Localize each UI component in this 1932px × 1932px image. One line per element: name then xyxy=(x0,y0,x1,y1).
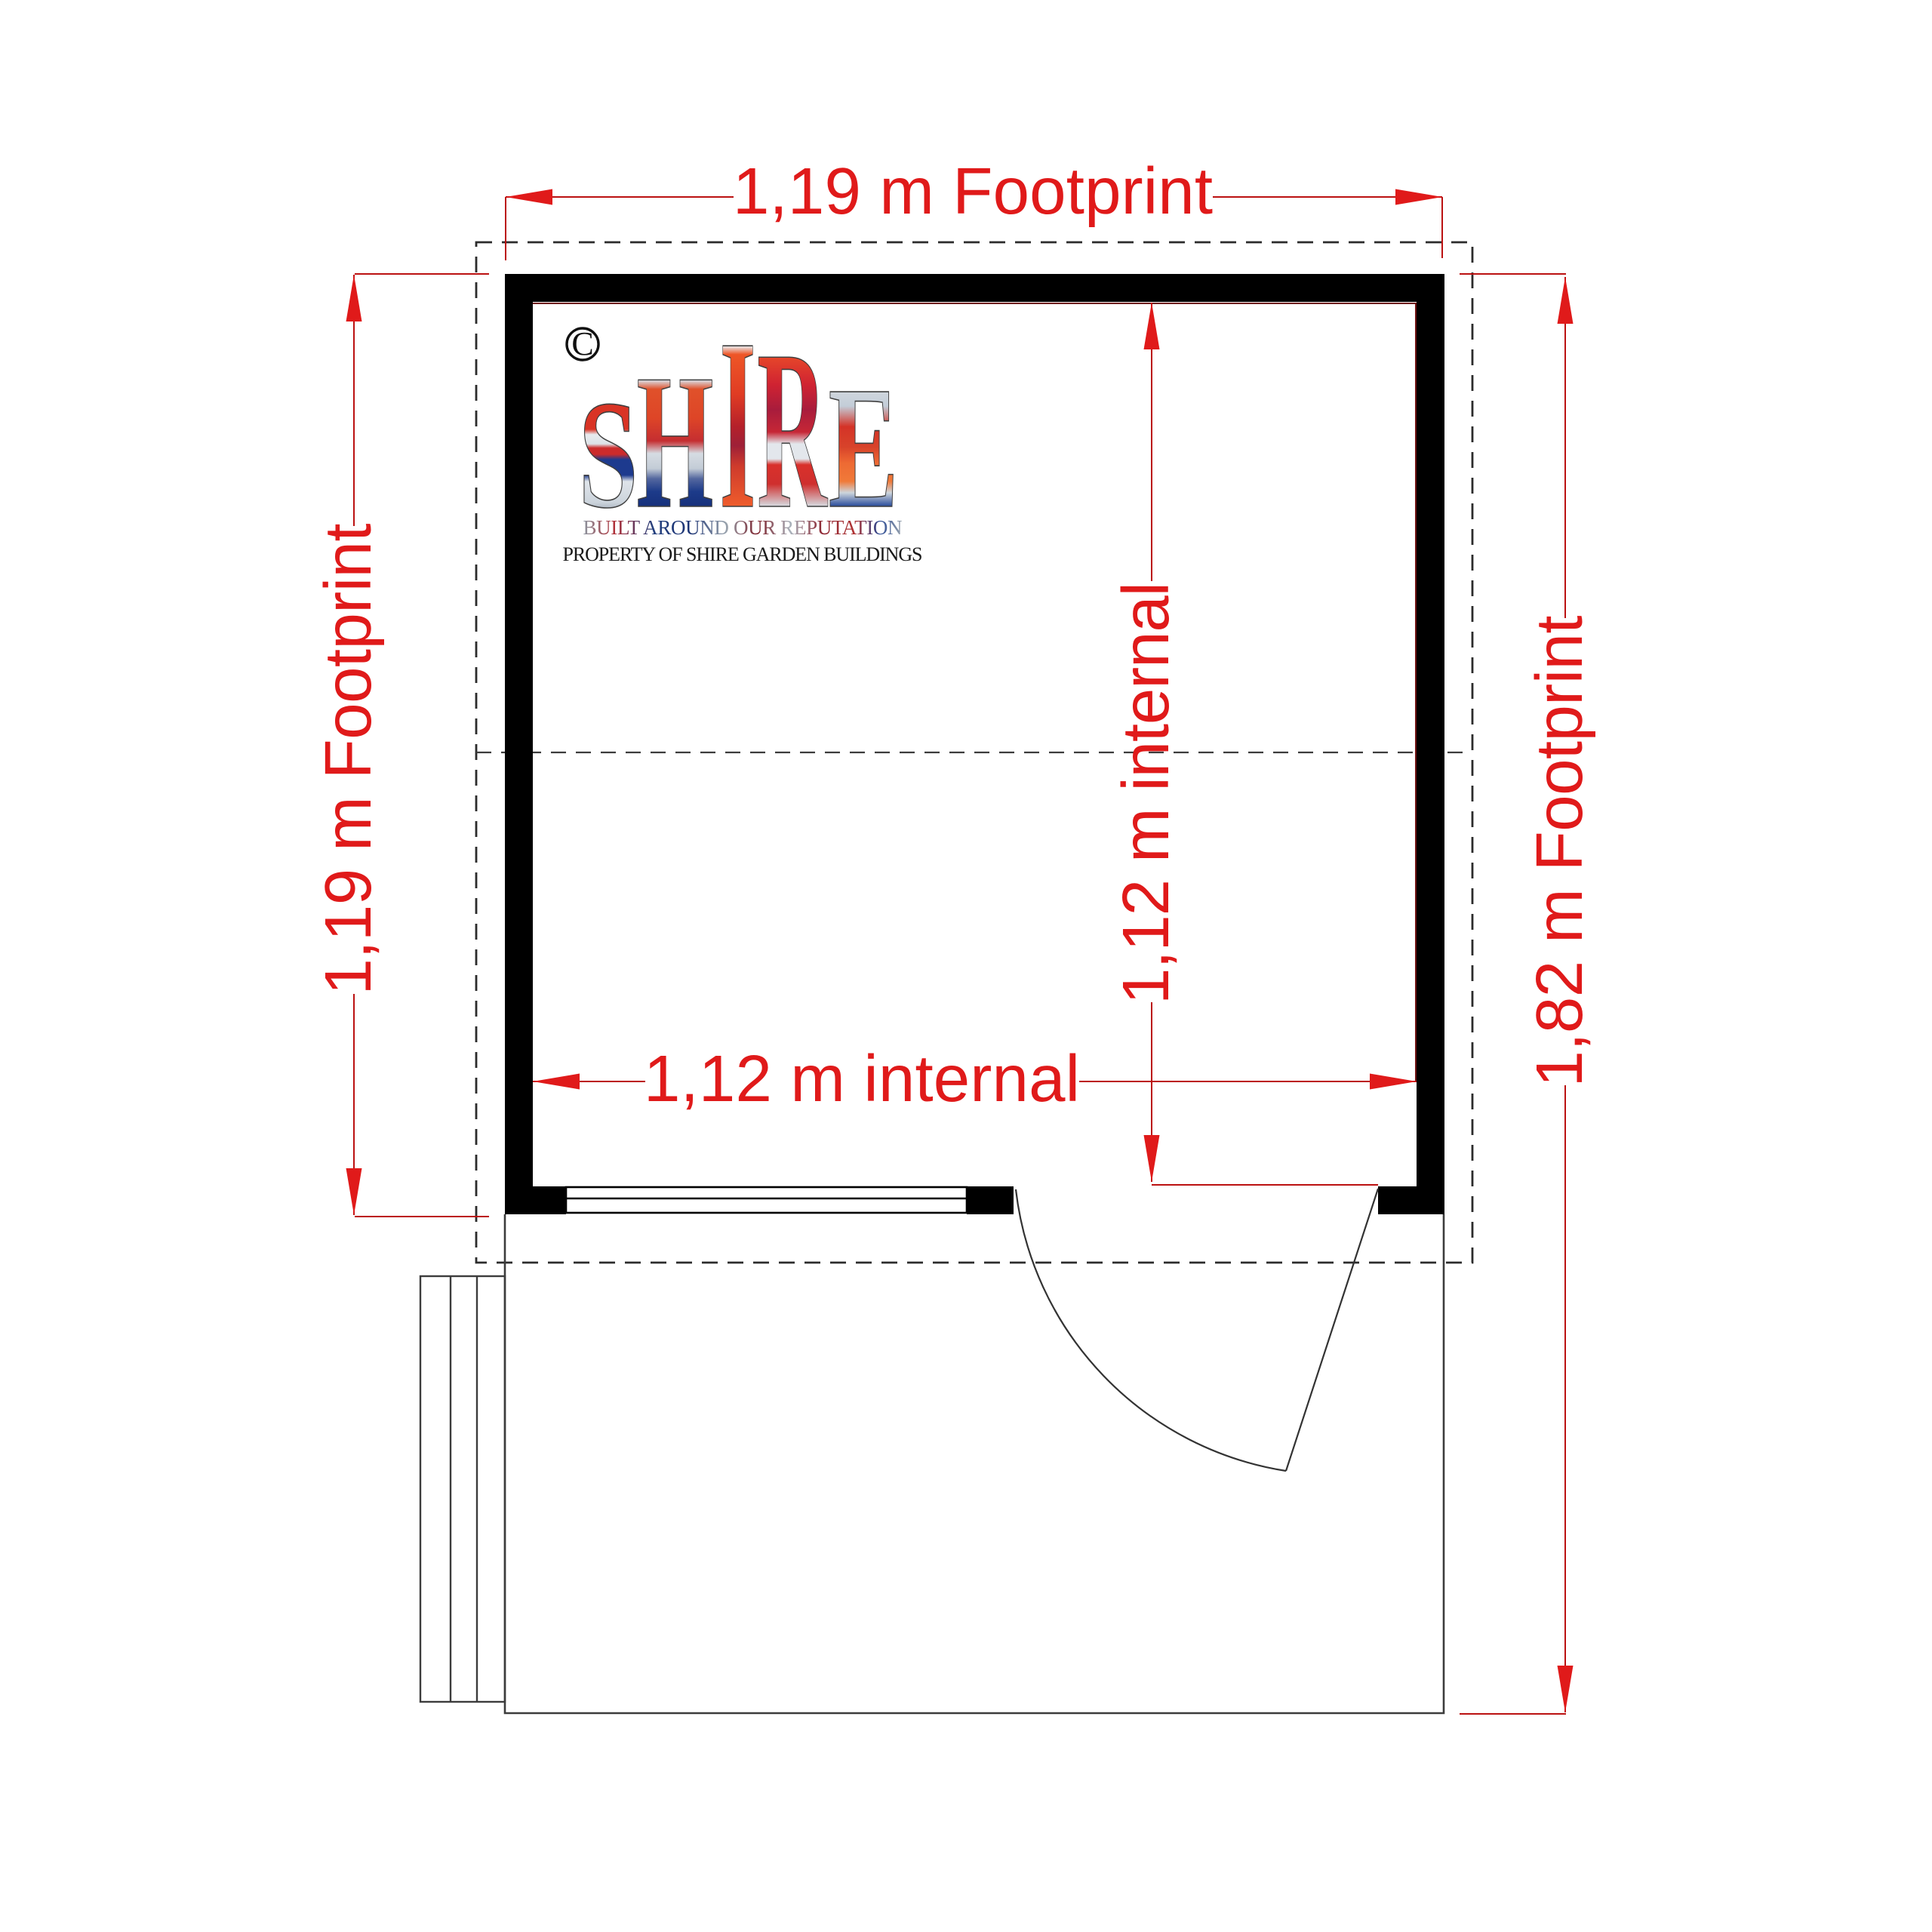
svg-text:1,19 m Footprint: 1,19 m Footprint xyxy=(312,524,385,995)
svg-text:C: C xyxy=(571,325,593,362)
svg-text:PROPERTY OF SHIRE GARDEN BUILD: PROPERTY OF SHIRE GARDEN BUILDINGS xyxy=(563,543,923,565)
svg-text:1,82 m Footprint: 1,82 m Footprint xyxy=(1523,616,1596,1088)
svg-text:S: S xyxy=(578,370,638,540)
svg-text:1,12 m internal: 1,12 m internal xyxy=(1109,582,1183,1004)
svg-text:BUILT AROUND OUR REPUTATION: BUILT AROUND OUR REPUTATION xyxy=(583,516,903,539)
svg-text:1,12 m internal: 1,12 m internal xyxy=(644,1042,1080,1115)
svg-text:1,19 m Footprint: 1,19 m Footprint xyxy=(733,155,1213,228)
